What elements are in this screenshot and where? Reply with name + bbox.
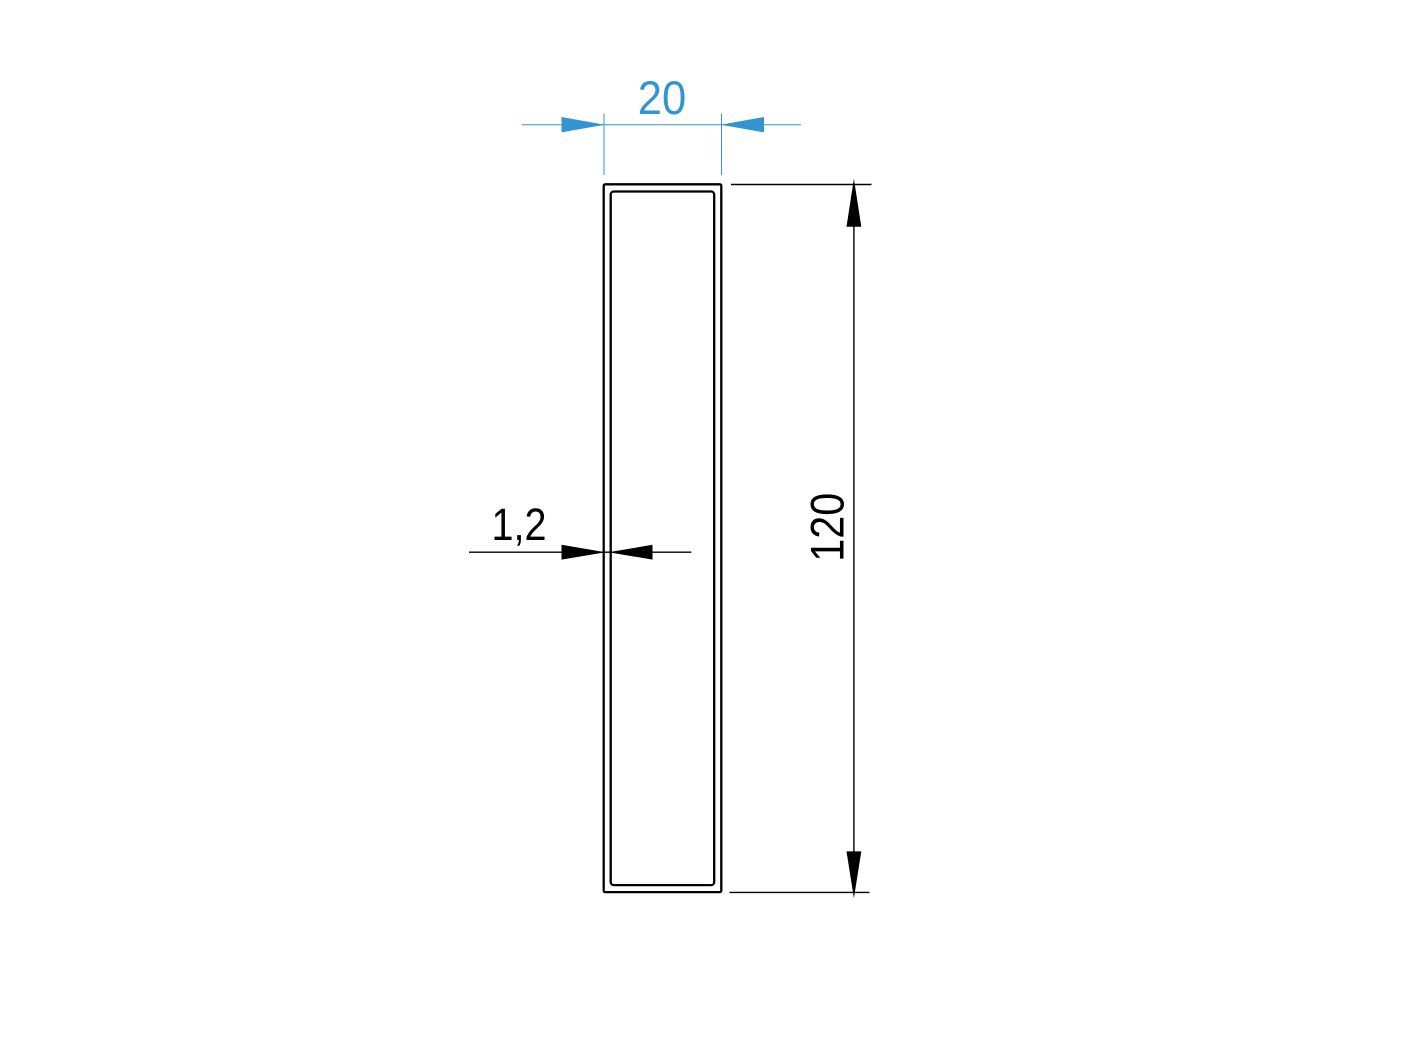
svg-text:1,2: 1,2 — [492, 499, 547, 550]
svg-text:20: 20 — [638, 72, 687, 125]
svg-text:120: 120 — [802, 493, 855, 562]
